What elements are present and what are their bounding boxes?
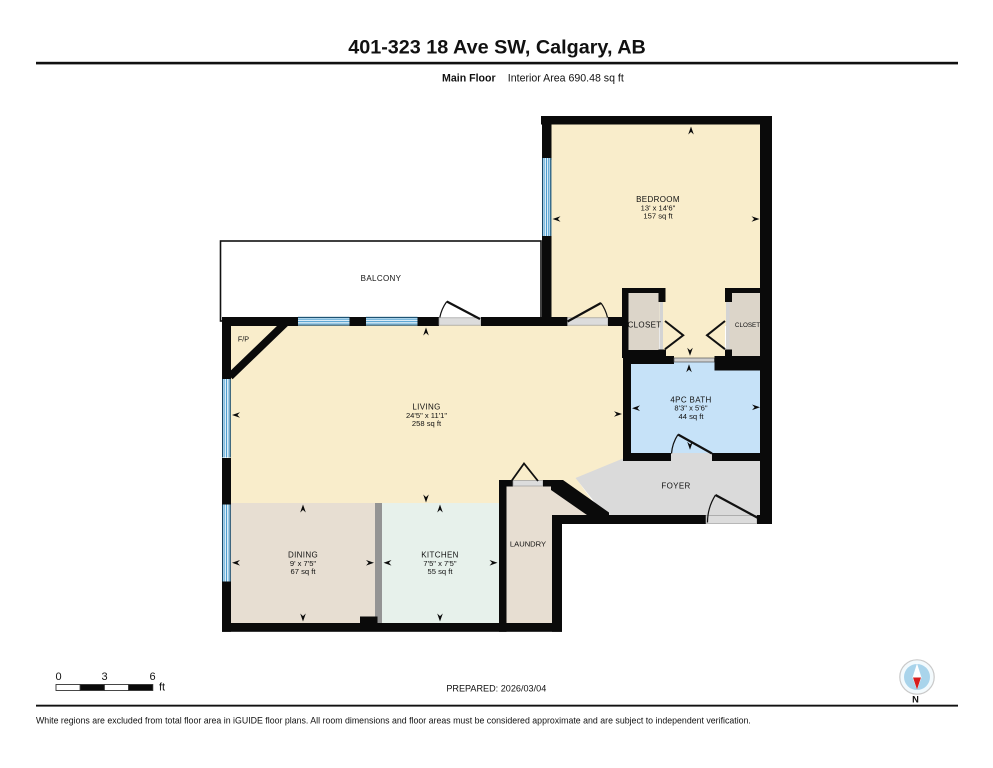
- svg-text:CLOSET: CLOSET: [628, 321, 662, 330]
- svg-text:157 sq ft: 157 sq ft: [643, 211, 673, 220]
- svg-text:0: 0: [55, 671, 61, 683]
- svg-text:55 sq ft: 55 sq ft: [428, 567, 454, 576]
- svg-text:Interior Area 690.48 sq ft: Interior Area 690.48 sq ft: [508, 73, 624, 85]
- svg-text:N: N: [912, 695, 919, 705]
- svg-text:FOYER: FOYER: [661, 482, 690, 491]
- svg-text:ft: ft: [159, 682, 165, 694]
- svg-text:6: 6: [149, 671, 155, 683]
- svg-text:401-323 18 Ave SW, Calgary, AB: 401-323 18 Ave SW, Calgary, AB: [348, 37, 646, 59]
- svg-text:LAUNDRY: LAUNDRY: [510, 540, 546, 549]
- svg-text:67 sq ft: 67 sq ft: [291, 567, 317, 576]
- svg-text:White regions are excluded fro: White regions are excluded from total fl…: [36, 716, 751, 726]
- svg-text:258 sq ft: 258 sq ft: [412, 419, 442, 428]
- svg-text:BALCONY: BALCONY: [361, 274, 402, 283]
- svg-text:Main Floor: Main Floor: [442, 73, 496, 85]
- svg-text:F/P: F/P: [238, 334, 249, 343]
- svg-text:44 sq ft: 44 sq ft: [679, 412, 705, 421]
- svg-text:PREPARED: 2026/03/04: PREPARED: 2026/03/04: [446, 684, 546, 694]
- svg-text:3: 3: [101, 671, 107, 683]
- svg-text:CLOSET: CLOSET: [735, 322, 760, 329]
